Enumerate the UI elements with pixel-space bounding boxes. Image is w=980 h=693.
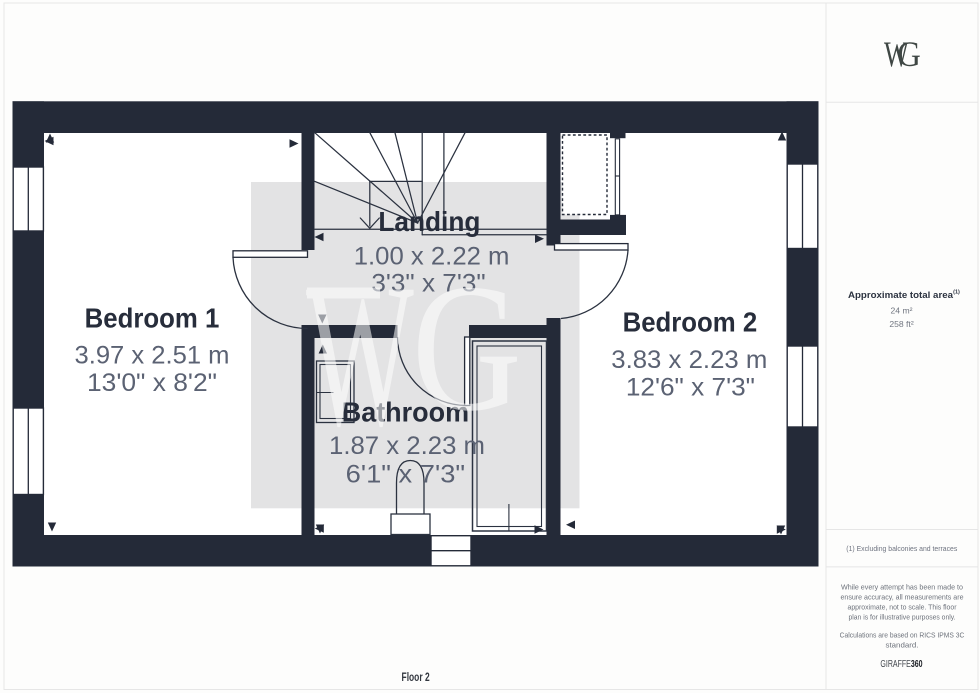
svg-text:Approximate total area: Approximate total area [848,290,954,300]
svg-text:(1) Excluding balconies and te: (1) Excluding balconies and terraces [846,544,957,553]
svg-text:standard.: standard. [886,641,919,650]
svg-text:13'0" x 8'2": 13'0" x 8'2" [87,369,217,397]
svg-text:Floor 2: Floor 2 [402,672,430,684]
svg-text:3.83 x 2.23 m: 3.83 x 2.23 m [611,346,767,374]
svg-text:12'6" x 7'3": 12'6" x 7'3" [626,374,755,402]
svg-text:Calculations are based on RICS: Calculations are based on RICS IPMS 3C [840,630,965,639]
svg-text:24 m²: 24 m² [891,306,913,316]
svg-text:ensure accuracy, all measureme: ensure accuracy, all measurements are [841,592,964,601]
svg-text:G: G [412,247,522,449]
svg-text:W: W [306,241,414,468]
svg-text:Bedroom 1: Bedroom 1 [85,303,220,334]
svg-text:While every attempt has been m: While every attempt has been made to [841,582,963,591]
svg-text:Bedroom 2: Bedroom 2 [623,307,758,338]
svg-text:GIRAFFE360: GIRAFFE360 [880,658,922,670]
svg-text:plan is for illustrative purpo: plan is for illustrative purposes only. [849,613,956,622]
svg-text:(1): (1) [953,290,960,296]
svg-text:Landing: Landing [378,206,480,237]
svg-text:approximate, not to scale. Thi: approximate, not to scale. This floor [848,603,957,612]
svg-text:G: G [897,35,921,75]
svg-text:258 ft²: 258 ft² [889,319,914,329]
svg-text:3.97 x 2.51 m: 3.97 x 2.51 m [75,342,230,370]
